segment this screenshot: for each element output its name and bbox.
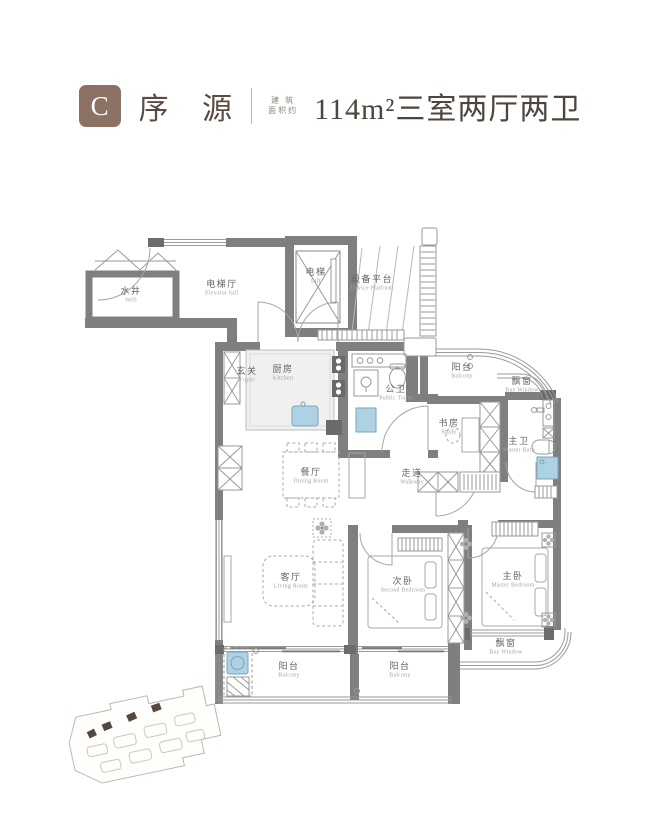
public-toilet-fixtures xyxy=(352,354,406,432)
service-block xyxy=(89,228,437,356)
study-furniture xyxy=(446,418,479,452)
dining-furniture xyxy=(283,443,365,507)
kitchen-fixtures xyxy=(246,350,345,435)
floor-plan-page: C 序 源 建 筑 面积约 114m²三室两厅两卫 xyxy=(0,0,660,825)
living-furniture xyxy=(224,519,343,626)
floor-plan-svg xyxy=(0,0,660,825)
key-plan xyxy=(63,682,226,788)
